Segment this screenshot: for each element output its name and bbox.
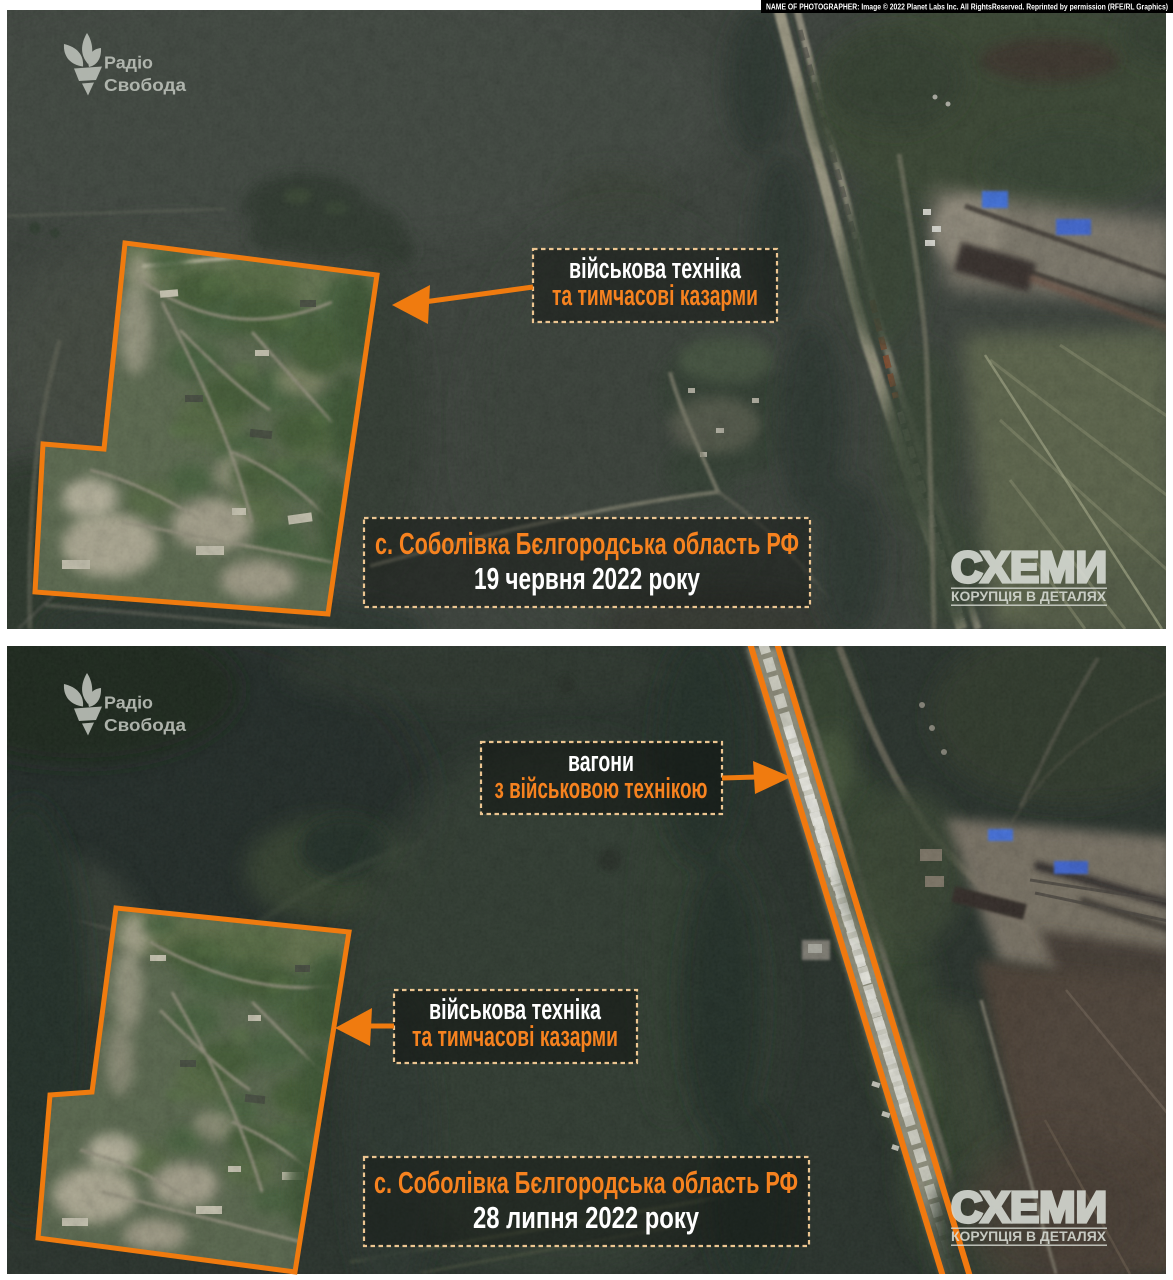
svg-text:Радіо: Радіо (104, 53, 153, 73)
svg-text:28 липня 2022 року: 28 липня 2022 року (473, 1202, 700, 1235)
svg-text:КОРУПЦІЯ В ДЕТАЛЯХ: КОРУПЦІЯ В ДЕТАЛЯХ (951, 589, 1106, 604)
svg-text:19 червня 2022 року: 19 червня 2022 року (474, 563, 701, 596)
svg-text:СХЕМИ: СХЕМИ (951, 543, 1107, 592)
svg-text:та тимчасові казарми: та тимчасові казарми (552, 279, 758, 312)
svg-text:с. Соболівка Бєлгородська обла: с. Соболівка Бєлгородська область РФ (375, 527, 799, 562)
svg-text:та тимчасові казарми: та тимчасові казарми (412, 1020, 618, 1053)
svg-text:с. Соболівка Бєлгородська обла: с. Соболівка Бєлгородська область РФ (374, 1166, 798, 1201)
svg-text:Свобода: Свобода (104, 75, 186, 95)
svg-text:NAME OF PHOTOGRAPHER: Image ©: NAME OF PHOTOGRAPHER: Image © 2022 Plane… (766, 3, 1168, 12)
svg-text:з військовою технікою: з військовою технікою (495, 772, 708, 805)
